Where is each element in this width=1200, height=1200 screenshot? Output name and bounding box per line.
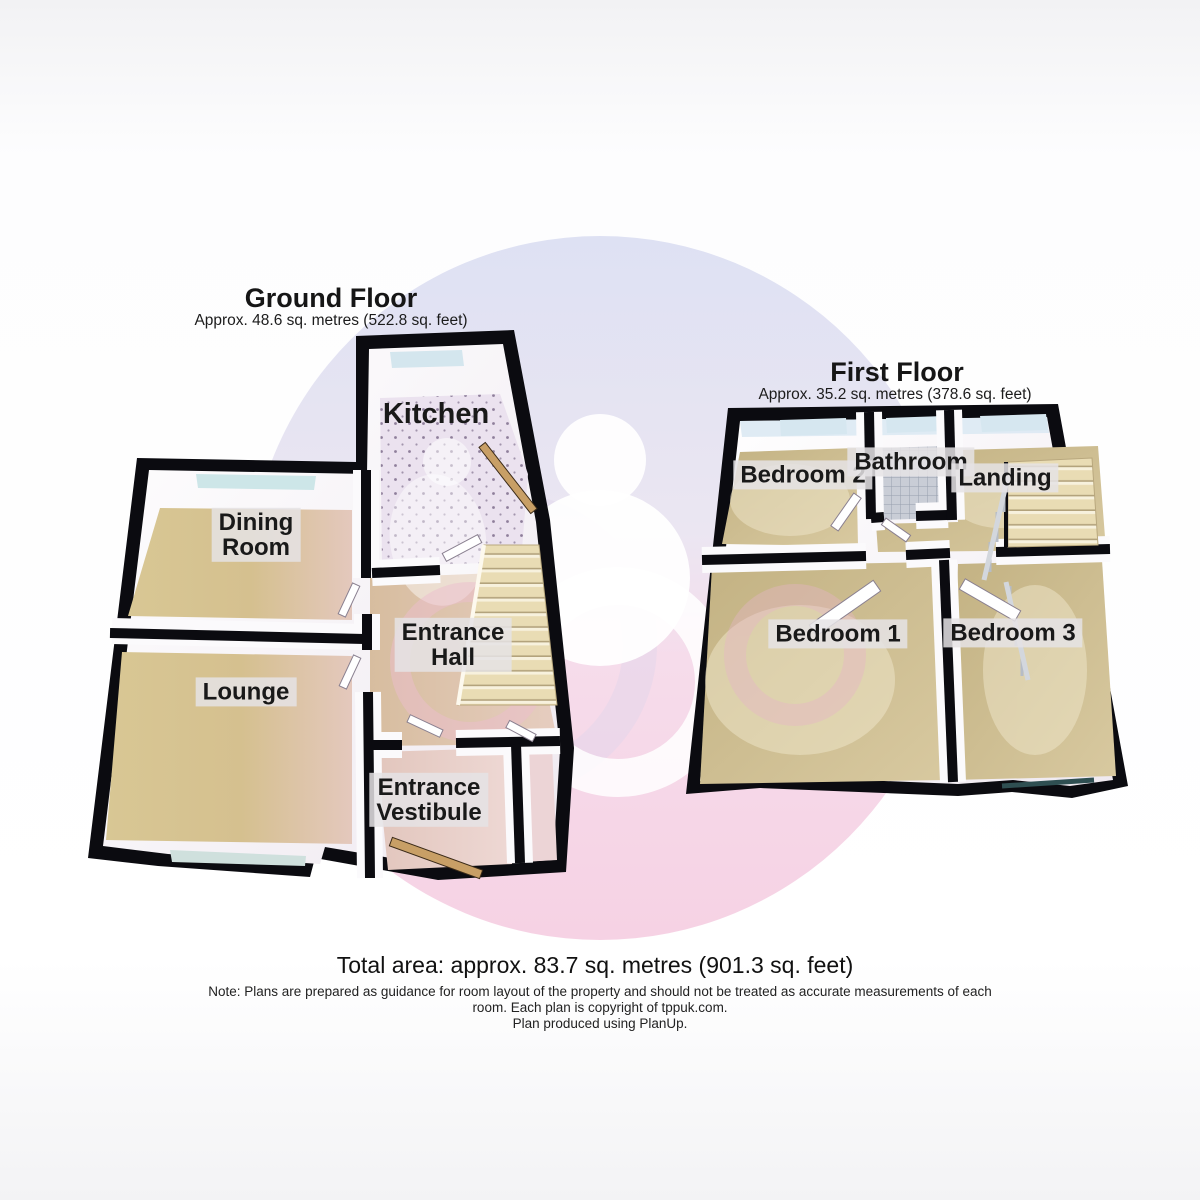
floorplan-page: Ground Floor Approx. 48.6 sq. metres (52… [0, 0, 1200, 1200]
room-label-lounge: Lounge [196, 677, 297, 706]
room-label-bedroom-3: Bedroom 3 [943, 618, 1082, 647]
ground-floor-title: Ground Floor [245, 283, 417, 314]
room-label-bedroom-1: Bedroom 1 [768, 619, 907, 648]
bathroom-window [886, 416, 945, 433]
note-line-3: Plan produced using PlanUp. [513, 1016, 688, 1032]
bedroom-2-window [780, 418, 847, 436]
room-label-entrance-vestibule: Entrance Vestibule [369, 773, 488, 827]
first-floor-title: First Floor [830, 357, 964, 388]
room-label-kitchen: Kitchen [383, 399, 489, 429]
first-floor-area: Approx. 35.2 sq. metres (378.6 sq. feet) [758, 386, 1031, 404]
ground-floor-area: Approx. 48.6 sq. metres (522.8 sq. feet) [194, 312, 467, 330]
room-label-landing: Landing [951, 463, 1058, 492]
room-label-dining-room: Dining Room [212, 508, 301, 562]
room-label-entrance-hall: Entrance Hall [395, 618, 512, 672]
total-area-text: Total area: approx. 83.7 sq. metres (901… [337, 952, 854, 979]
note-line-2: room. Each plan is copyright of tppuk.co… [472, 1000, 727, 1016]
kitchen-window [390, 350, 464, 368]
note-line-1: Note: Plans are prepared as guidance for… [208, 984, 991, 1000]
dining-room-window [196, 474, 316, 490]
landing-window [980, 414, 1048, 432]
